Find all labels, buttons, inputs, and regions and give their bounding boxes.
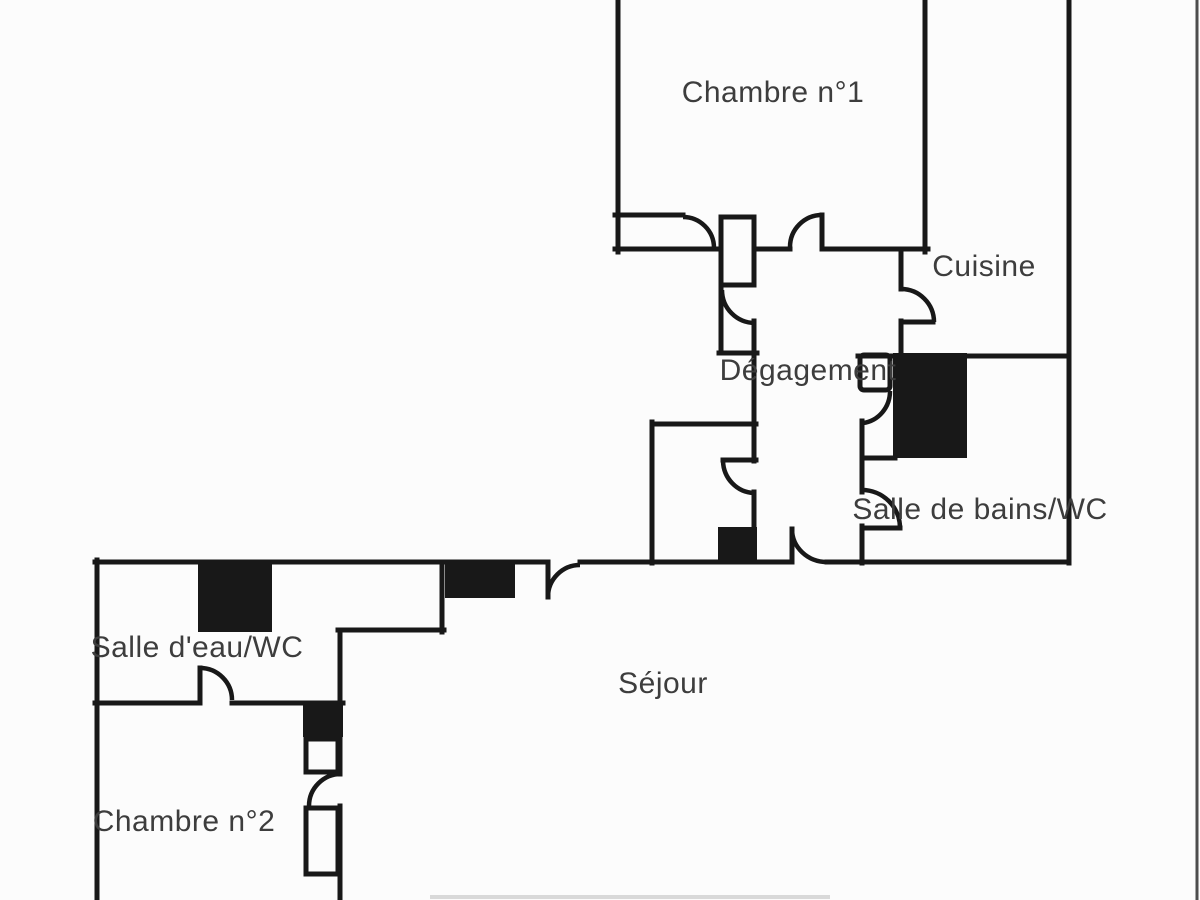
shaft-cuisine bbox=[893, 353, 967, 458]
door-arc-cuisine bbox=[901, 289, 934, 322]
door-arc-chambre1-right bbox=[790, 215, 822, 247]
room-label-degagement: Dégagement bbox=[720, 356, 897, 386]
door-leaf-rect-chambre2-lower bbox=[306, 808, 338, 874]
room-label-cuisine: Cuisine bbox=[932, 252, 1036, 282]
room-label-chambre1: Chambre n°1 bbox=[682, 78, 865, 108]
shaft-salle-deau bbox=[198, 562, 272, 632]
floor-plan: Chambre n°1 Cuisine Dégagement Salle de … bbox=[0, 0, 1200, 900]
shaft-chambre2 bbox=[303, 703, 343, 737]
door-arc-sejour-left bbox=[548, 565, 580, 597]
shaft-degagement bbox=[718, 527, 757, 563]
door-leaf-rect-chambre2-upper bbox=[306, 739, 338, 772]
room-label-salle-d-eau-wc: Salle d'eau/WC bbox=[91, 633, 304, 663]
door-arc-degagement-top bbox=[722, 290, 755, 323]
door-arc-sdb-top bbox=[863, 391, 890, 423]
shaft-sejour-top bbox=[445, 562, 515, 598]
door-arc-closet bbox=[723, 461, 754, 493]
room-label-sejour: Séjour bbox=[618, 669, 708, 699]
door-arc-chambre1-left bbox=[683, 217, 714, 248]
door-leaf-rect-degagement bbox=[721, 217, 754, 285]
door-arc-chambre2 bbox=[309, 774, 341, 806]
floorplan-drawing bbox=[0, 0, 1200, 900]
door-arc-sejour-right bbox=[792, 529, 827, 562]
room-label-salle-de-bains-wc: Salle de bains/WC bbox=[852, 495, 1107, 525]
room-label-chambre2: Chambre n°2 bbox=[93, 807, 276, 837]
door-arc-salledeau bbox=[200, 668, 232, 700]
